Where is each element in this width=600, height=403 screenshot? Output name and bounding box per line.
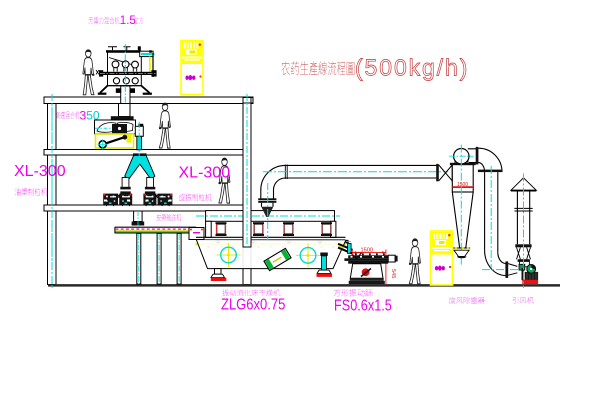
svg-text:ZLG6x0.75: ZLG6x0.75	[221, 297, 285, 314]
svg-text:545: 545	[390, 269, 396, 278]
svg-text:(500kg/h): (500kg/h)	[355, 55, 469, 81]
svg-text:1500: 1500	[457, 182, 468, 188]
svg-text:50: 50	[86, 109, 100, 123]
svg-text:XL-300: XL-300	[14, 163, 66, 180]
svg-text:FS0.6x1.5: FS0.6x1.5	[334, 297, 392, 314]
svg-text:XL-300: XL-300	[179, 165, 231, 182]
svg-text:1500: 1500	[361, 247, 373, 253]
svg-text:1.5: 1.5	[120, 15, 136, 27]
